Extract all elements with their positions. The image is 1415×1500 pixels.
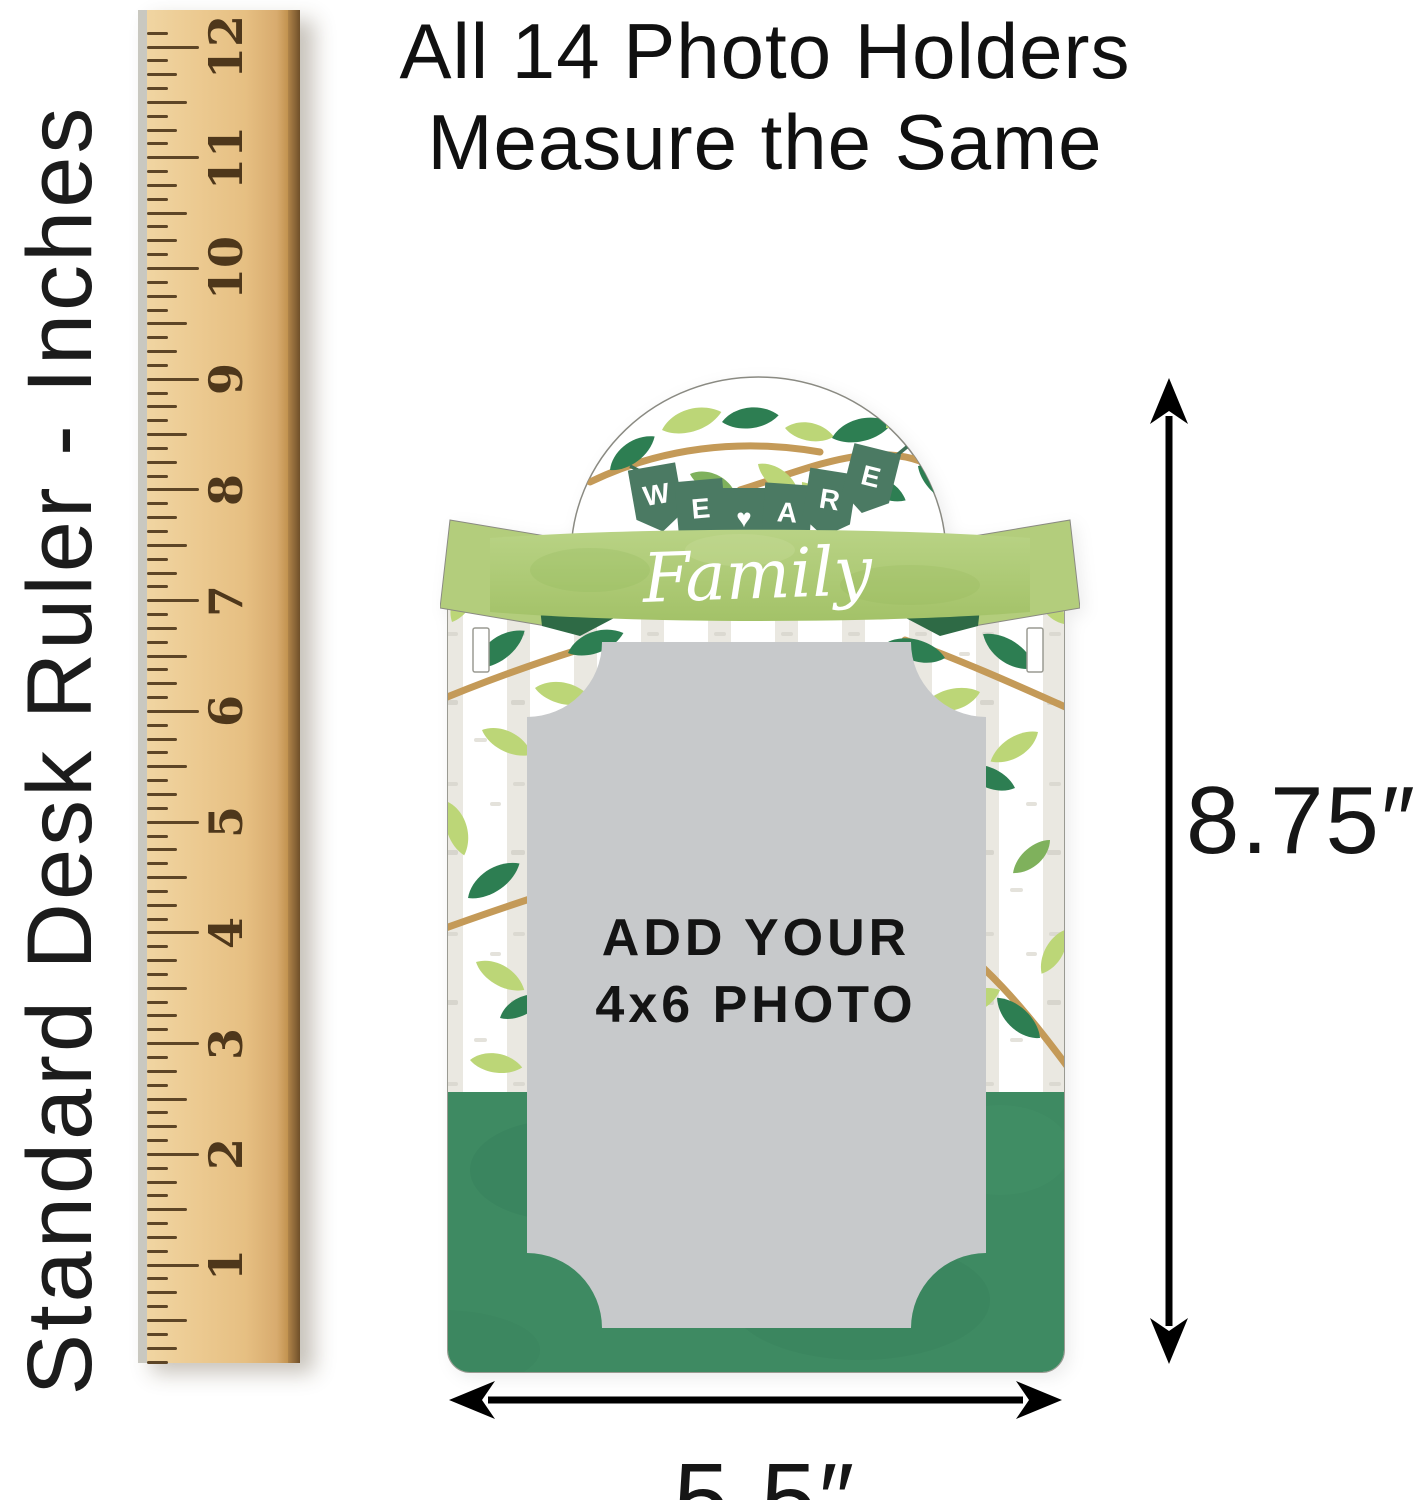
width-dimension-label: 5.5″ (590, 1442, 940, 1500)
dimension-annotations (0, 0, 1415, 1500)
height-arrow (1150, 378, 1188, 1364)
width-arrow (449, 1381, 1062, 1419)
height-dimension-label: 8.75″ (1186, 766, 1415, 876)
page: Standard Desk Ruler - Inches 12111098765… (0, 0, 1415, 1500)
